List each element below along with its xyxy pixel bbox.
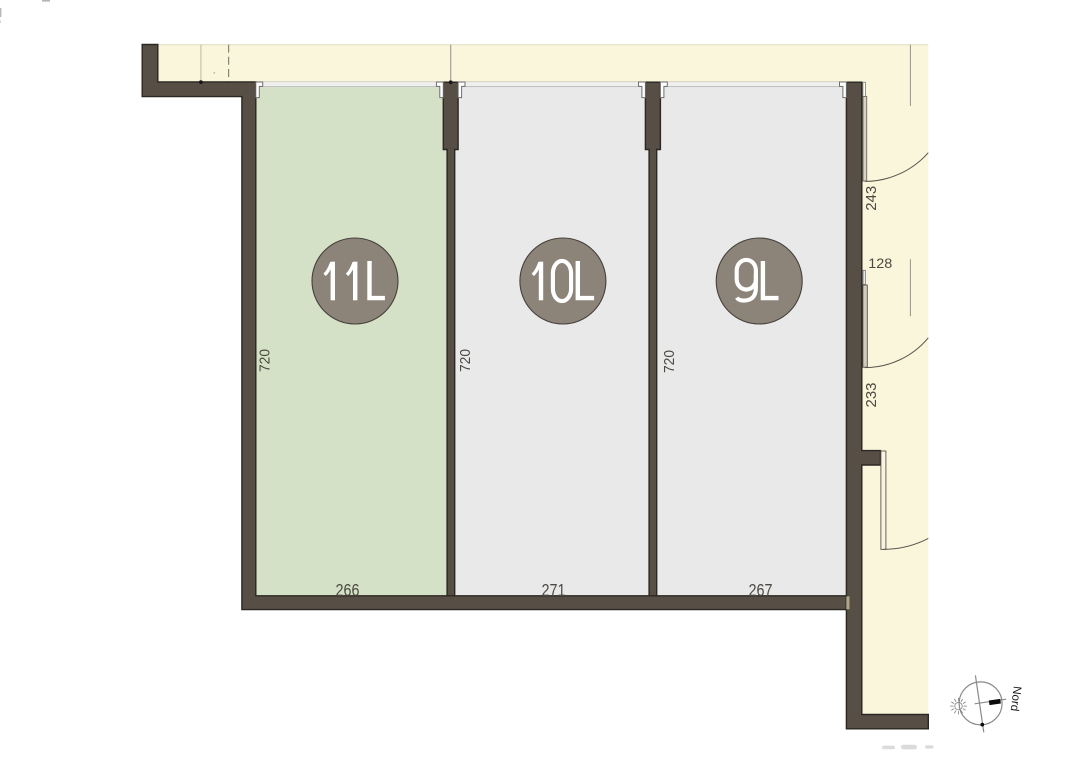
svg-text:128: 128 (868, 256, 892, 271)
svg-text:266: 266 (336, 580, 360, 600)
svg-text:243: 243 (863, 186, 880, 211)
svg-text:271: 271 (542, 580, 566, 600)
svg-text:267: 267 (749, 580, 773, 600)
svg-text:720: 720 (256, 349, 273, 372)
svg-text:233: 233 (863, 383, 880, 408)
svg-text:720: 720 (457, 349, 474, 372)
svg-text:720: 720 (661, 350, 678, 373)
